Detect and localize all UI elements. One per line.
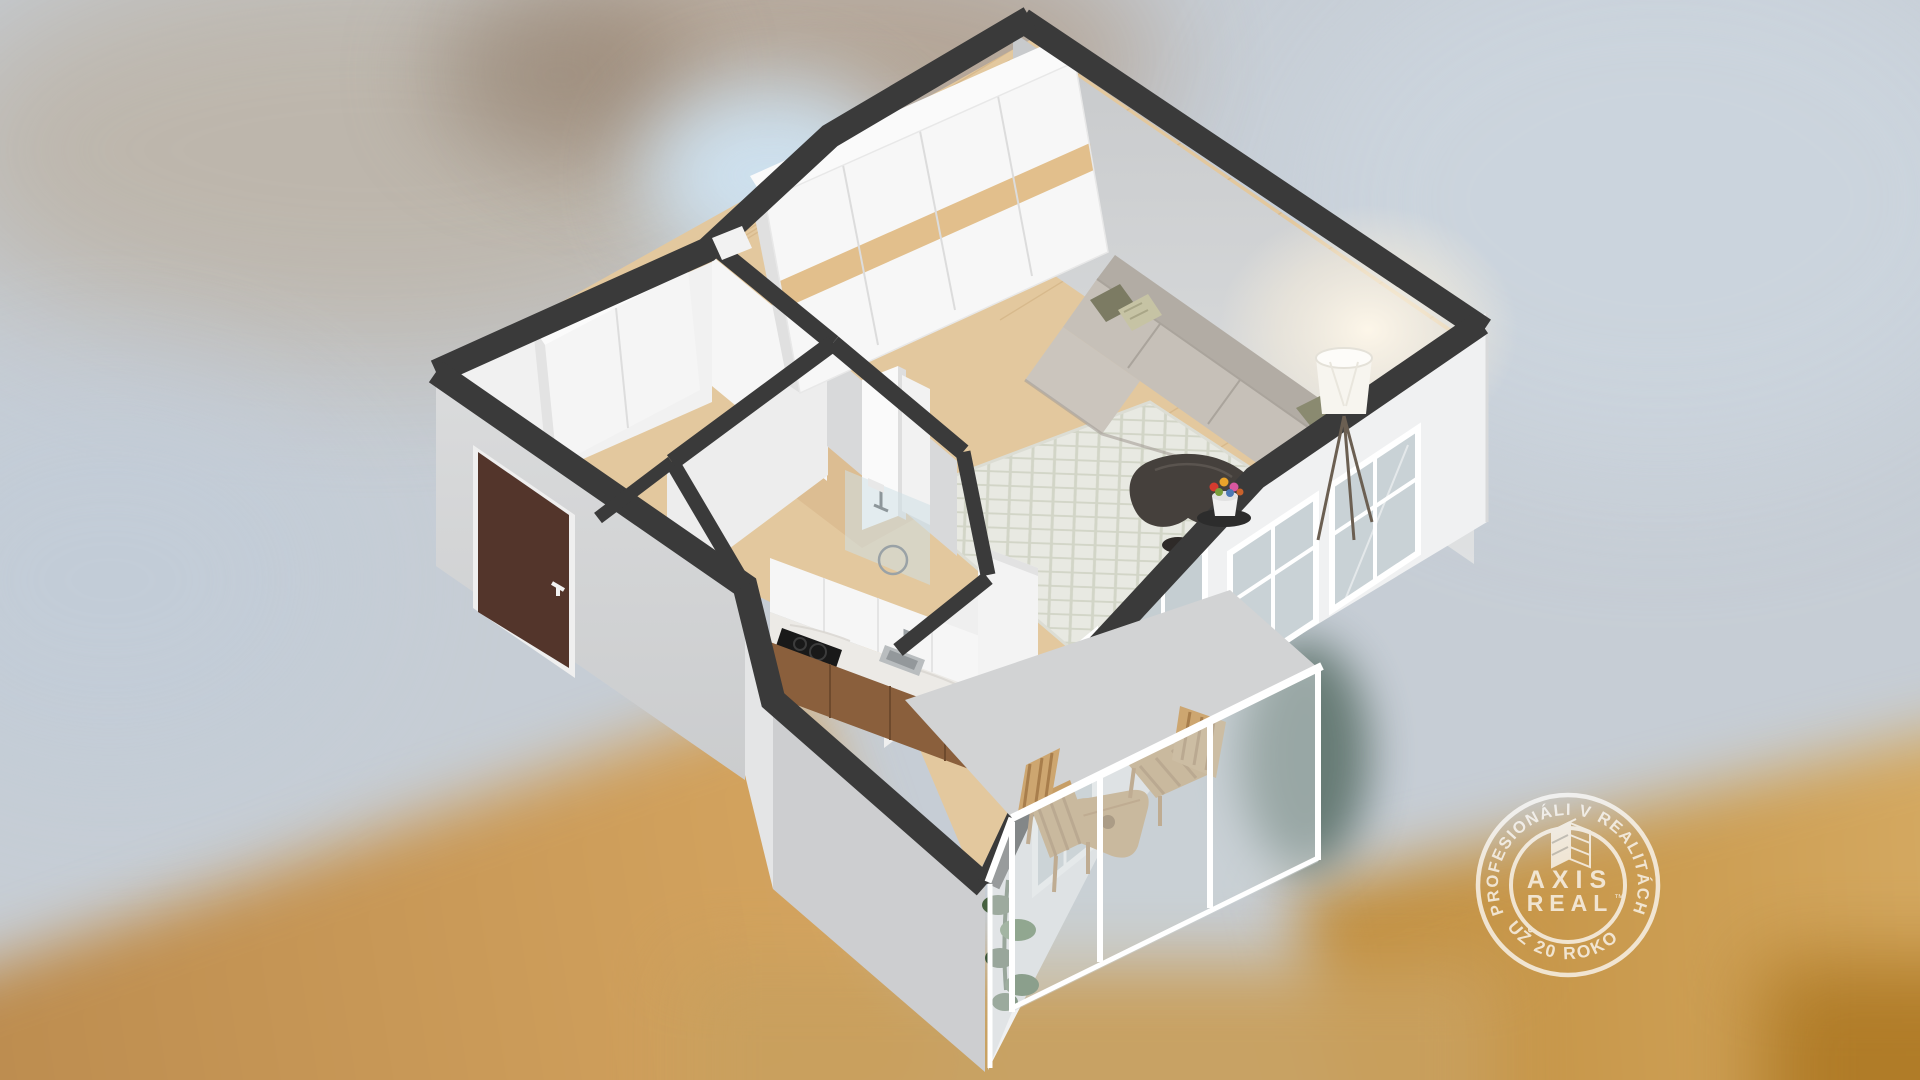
- badge-arc-bottom-text: UŽ 20 ROKOV: [1418, 735, 1623, 963]
- screenshot-canvas: PROFESIONÁLI V REALITÁCH UŽ 20 ROKOV AXI…: [0, 0, 1920, 1080]
- brand-real: REAL: [1527, 890, 1614, 916]
- axis-real-watermark: PROFESIONÁLI V REALITÁCH UŽ 20 ROKOV AXI…: [1418, 735, 1718, 1035]
- building-icon: [1552, 819, 1590, 867]
- brand-trademark: ™: [1614, 893, 1624, 904]
